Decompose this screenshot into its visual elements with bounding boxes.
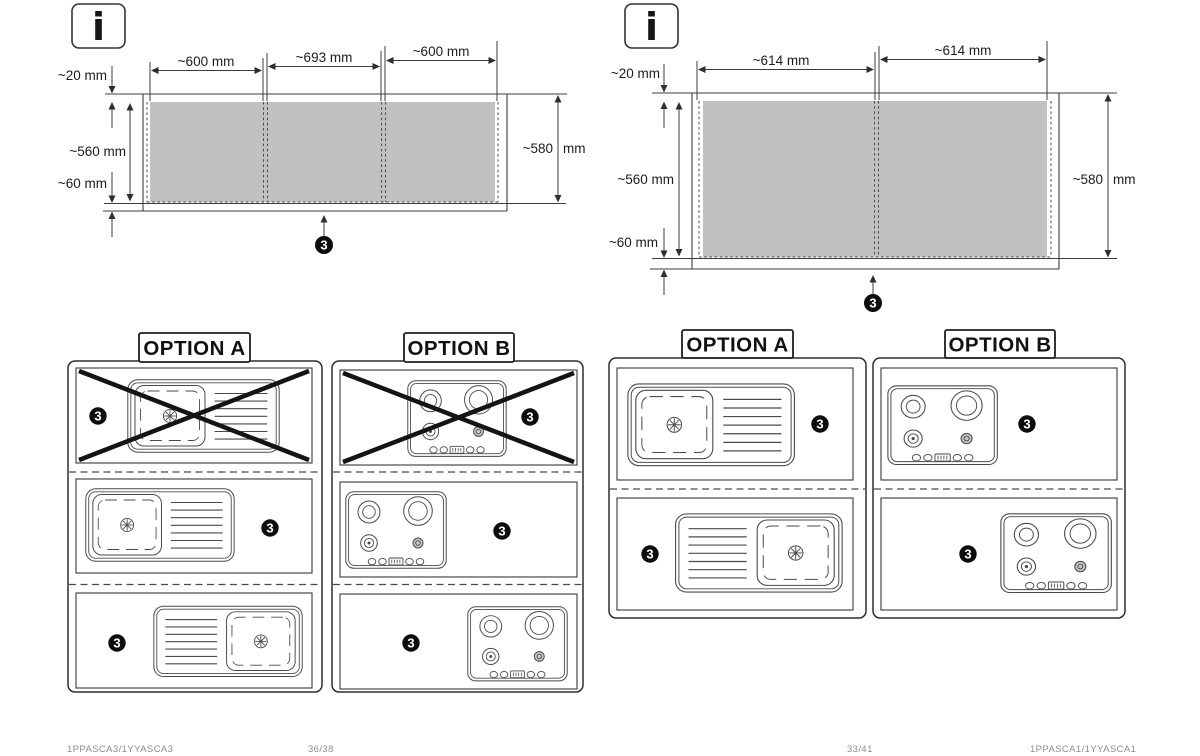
callout-badge-number: 3 bbox=[869, 296, 876, 311]
callout-badge-number: 3 bbox=[266, 521, 273, 536]
panel-frame bbox=[609, 358, 866, 618]
callout-badge-number: 3 bbox=[526, 410, 533, 425]
page-left: i bbox=[58, 4, 586, 755]
callout-badge-number: 3 bbox=[498, 524, 505, 539]
countertop-dimension-diagram: ~614 mm ~614 mm ~20 mm ~560 mm ~60 mm ~5… bbox=[609, 41, 1136, 312]
dim-total-depth-unit: mm bbox=[563, 141, 586, 156]
panel-frame bbox=[873, 358, 1125, 618]
dim-width-1: ~600 mm bbox=[178, 54, 235, 69]
width-dimensions: ~614 mm ~614 mm bbox=[699, 43, 1045, 70]
option-label: OPTION B bbox=[407, 337, 510, 360]
option-label: OPTION B bbox=[948, 334, 1051, 357]
info-box: i bbox=[72, 4, 125, 49]
callout-badge-number: 3 bbox=[407, 636, 414, 651]
callout-badge-number: 3 bbox=[646, 547, 653, 562]
dim-total-depth: ~580 bbox=[523, 141, 553, 156]
width-dimensions: ~600 mm ~693 mm ~600 mm bbox=[152, 44, 495, 71]
dim-top-offset: ~20 mm bbox=[58, 68, 107, 83]
info-box: i bbox=[625, 4, 678, 49]
page-right: i bbox=[609, 4, 1136, 755]
part-callout: 3 bbox=[864, 276, 882, 312]
panel-frame bbox=[332, 361, 583, 692]
document-code: 1PPASCA3/1YYASCA3 bbox=[67, 744, 173, 755]
callout-badge-number: 3 bbox=[964, 547, 971, 562]
dim-bottom-offset: ~60 mm bbox=[58, 176, 107, 191]
dim-zone-depth: ~560 mm bbox=[69, 144, 126, 159]
dim-bottom-offset: ~60 mm bbox=[609, 235, 658, 250]
option-b-panel: 3 3 OPTION B bbox=[873, 330, 1125, 618]
dim-width-2: ~693 mm bbox=[296, 50, 353, 65]
dim-total-depth-unit: mm bbox=[1113, 172, 1136, 187]
page-indicator: 33/41 bbox=[847, 744, 873, 755]
dim-zone-depth: ~560 mm bbox=[617, 172, 674, 187]
option-a-panel: 3 3 3 OPTION A bbox=[68, 333, 322, 692]
dim-total-depth: ~580 bbox=[1073, 172, 1103, 187]
callout-badge-number: 3 bbox=[113, 636, 120, 651]
manual-page-canvas: i bbox=[0, 0, 1200, 756]
info-icon: i bbox=[92, 5, 105, 49]
panel-frame bbox=[68, 361, 322, 692]
instruction-manual-spread: i bbox=[0, 0, 1200, 756]
dim-width-1: ~614 mm bbox=[753, 53, 810, 68]
document-code: 1PPASCA1/1YYASCA1 bbox=[1030, 744, 1136, 755]
cutout-zone bbox=[150, 102, 495, 202]
option-b-panel: 3 3 3 OPTION B bbox=[332, 333, 583, 692]
callout-badge-number: 3 bbox=[94, 409, 101, 424]
dim-width-3: ~600 mm bbox=[413, 44, 470, 59]
callout-badge-number: 3 bbox=[1023, 417, 1030, 432]
info-icon: i bbox=[645, 5, 658, 49]
option-label: OPTION A bbox=[143, 337, 245, 360]
extension-lines bbox=[697, 41, 1047, 100]
option-label: OPTION A bbox=[686, 334, 788, 357]
dim-top-offset: ~20 mm bbox=[611, 66, 660, 81]
callout-badge-number: 3 bbox=[320, 238, 327, 253]
countertop-dimension-diagram: ~600 mm ~693 mm ~600 mm ~20 mm ~560 mm ~… bbox=[58, 41, 586, 254]
option-a-panel: 3 3 OPTION A bbox=[609, 330, 866, 618]
callout-badge-number: 3 bbox=[816, 417, 823, 432]
part-callout: 3 bbox=[315, 216, 333, 254]
page-indicator: 36/38 bbox=[308, 744, 334, 755]
dim-width-2: ~614 mm bbox=[935, 43, 992, 58]
